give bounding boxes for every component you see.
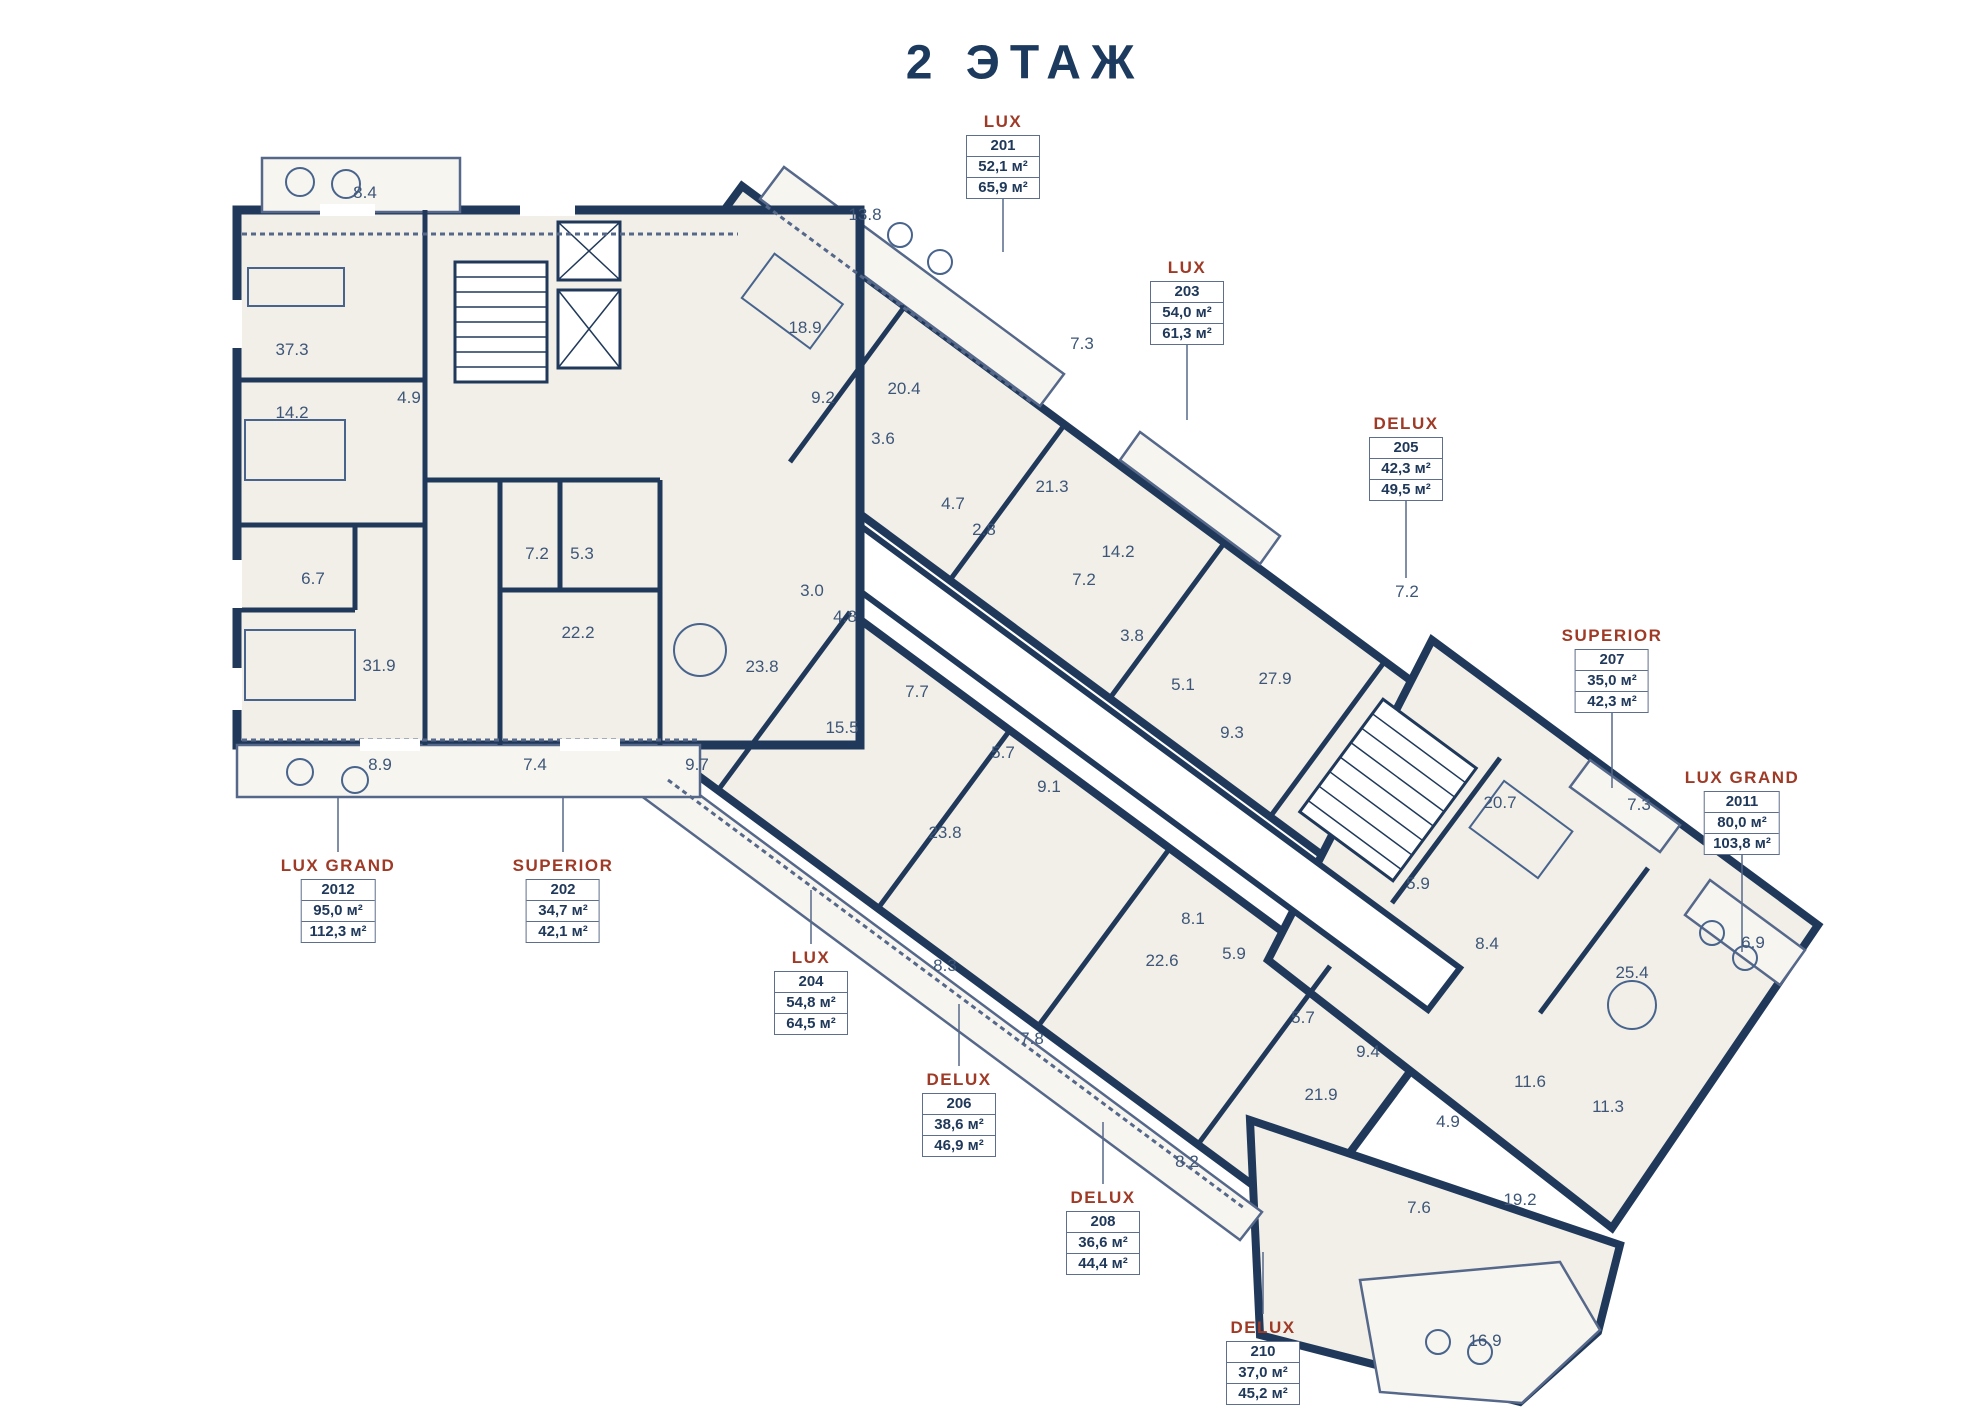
apartment-info-box: 203 54,0 м² 61,3 м² (1150, 281, 1224, 345)
apartment-label: SUPERIOR 207 35,0 м² 42,3 м² (1562, 626, 1663, 713)
apartment-area-main: 35,0 м² (1576, 670, 1648, 691)
page-title: 2 ЭТАЖ (906, 36, 1145, 91)
apartment-area-main: 80,0 м² (1705, 812, 1779, 833)
apartment-unit-number: 2012 (302, 880, 375, 900)
apartment-type-label: LUX (774, 948, 848, 968)
apartment-area-total: 112,3 м² (302, 921, 375, 942)
apartment-unit-number: 208 (1067, 1212, 1139, 1232)
apartment-type-label: DELUX (1066, 1188, 1140, 1208)
apartment-area-total: 42,3 м² (1576, 691, 1648, 712)
terrace-16-9 (1360, 1262, 1600, 1403)
apartment-unit-number: 205 (1370, 438, 1442, 458)
apartment-info-box: 206 38,6 м² 46,9 м² (922, 1093, 996, 1157)
apartment-label: LUX 204 54,8 м² 64,5 м² (774, 948, 848, 1035)
apartment-type-label: SUPERIOR (513, 856, 614, 876)
apartment-type-label: DELUX (1226, 1318, 1300, 1338)
balcony-chair (888, 223, 912, 247)
balcony-chair (928, 250, 952, 274)
floor-plan-drawing (0, 0, 1980, 1414)
apartment-unit-number: 204 (775, 972, 847, 992)
main-block-bottom-balcony (237, 745, 700, 797)
apartment-type-label: LUX (966, 112, 1040, 132)
apartment-unit-number: 203 (1151, 282, 1223, 302)
apartment-label: LUX GRAND 2012 95,0 м² 112,3 м² (281, 856, 396, 943)
apartment-type-label: LUX GRAND (281, 856, 396, 876)
apartment-area-total: 44,4 м² (1067, 1253, 1139, 1274)
apartment-area-main: 34,7 м² (527, 900, 599, 921)
apartment-type-label: LUX GRAND (1685, 768, 1800, 788)
apartment-info-box: 210 37,0 м² 45,2 м² (1226, 1341, 1300, 1405)
apartment-type-label: SUPERIOR (1562, 626, 1663, 646)
apartment-area-main: 36,6 м² (1067, 1232, 1139, 1253)
apartment-info-box: 205 42,3 м² 49,5 м² (1369, 437, 1443, 501)
apartment-label: SUPERIOR 202 34,7 м² 42,1 м² (513, 856, 614, 943)
apartment-type-label: DELUX (1369, 414, 1443, 434)
apartment-area-total: 42,1 м² (527, 921, 599, 942)
apartment-unit-number: 201 (967, 136, 1039, 156)
apartment-type-label: LUX (1150, 258, 1224, 278)
apartment-area-total: 45,2 м² (1227, 1383, 1299, 1404)
apartment-area-total: 64,5 м² (775, 1013, 847, 1034)
apartment-info-box: 208 36,6 м² 44,4 м² (1066, 1211, 1140, 1275)
apartment-label: DELUX 205 42,3 м² 49,5 м² (1369, 414, 1443, 501)
apartment-info-box: 202 34,7 м² 42,1 м² (526, 879, 600, 943)
apartment-area-main: 42,3 м² (1370, 458, 1442, 479)
apartment-area-main: 95,0 м² (302, 900, 375, 921)
apartment-info-box: 207 35,0 м² 42,3 м² (1575, 649, 1649, 713)
apartment-label: DELUX 208 36,6 м² 44,4 м² (1066, 1188, 1140, 1275)
apartment-unit-number: 207 (1576, 650, 1648, 670)
apartment-area-main: 37,0 м² (1227, 1362, 1299, 1383)
apartment-type-label: DELUX (922, 1070, 996, 1090)
apartment-info-box: 204 54,8 м² 64,5 м² (774, 971, 848, 1035)
apartment-area-main: 54,8 м² (775, 992, 847, 1013)
apartment-area-total: 46,9 м² (923, 1135, 995, 1156)
floor-plan-page: 2 ЭТАЖ 8.437.314.24.96.731.97.25.322.28.… (0, 0, 1980, 1414)
apartment-label: DELUX 210 37,0 м² 45,2 м² (1226, 1318, 1300, 1405)
apartment-area-total: 103,8 м² (1705, 833, 1779, 854)
apartment-label: DELUX 206 38,6 м² 46,9 м² (922, 1070, 996, 1157)
apartment-area-main: 38,6 м² (923, 1114, 995, 1135)
apartment-area-total: 65,9 м² (967, 177, 1039, 198)
apartment-label: LUX 201 52,1 м² 65,9 м² (966, 112, 1040, 199)
apartment-info-box: 201 52,1 м² 65,9 м² (966, 135, 1040, 199)
apartment-area-main: 52,1 м² (967, 156, 1039, 177)
apartment-info-box: 2011 80,0 м² 103,8 м² (1704, 791, 1780, 855)
apartment-area-total: 49,5 м² (1370, 479, 1442, 500)
apartment-unit-number: 2011 (1705, 792, 1779, 812)
apartment-info-box: 2012 95,0 м² 112,3 м² (301, 879, 376, 943)
apartment-unit-number: 202 (527, 880, 599, 900)
apartment-label: LUX 203 54,0 м² 61,3 м² (1150, 258, 1224, 345)
apartment-label: LUX GRAND 2011 80,0 м² 103,8 м² (1685, 768, 1800, 855)
apartment-area-main: 54,0 м² (1151, 302, 1223, 323)
main-block-top-balcony (262, 158, 460, 212)
apartment-unit-number: 210 (1227, 1342, 1299, 1362)
apartment-area-total: 61,3 м² (1151, 323, 1223, 344)
apartment-unit-number: 206 (923, 1094, 995, 1114)
